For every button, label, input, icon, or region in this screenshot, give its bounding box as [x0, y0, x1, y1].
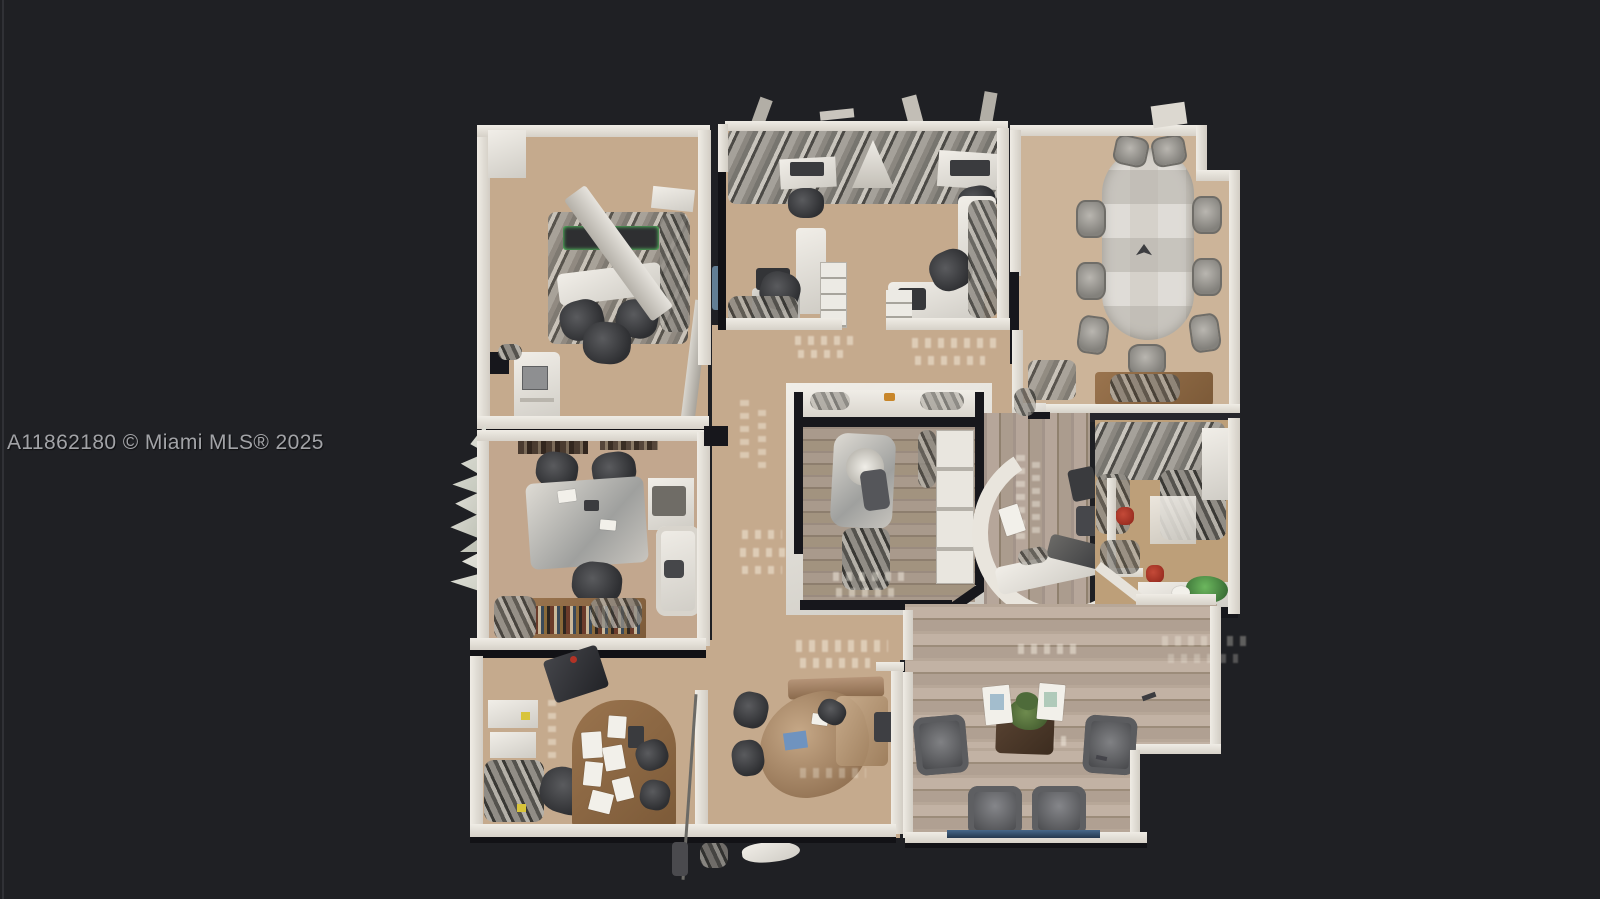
wall-ledge — [876, 662, 904, 671]
ghost-mark — [912, 338, 997, 348]
wall — [477, 432, 489, 644]
operatory-wall — [794, 417, 984, 427]
wall-shadow — [704, 837, 896, 843]
clutter — [1014, 388, 1036, 416]
conference-chair — [1076, 200, 1106, 238]
equipment-dark — [859, 468, 890, 511]
printer — [652, 486, 686, 516]
wall — [891, 664, 903, 834]
ghost-mark — [800, 658, 870, 668]
floor-plan-photo: A11862180 © Miami MLS® 2025 — [0, 0, 1600, 899]
wall — [698, 130, 711, 365]
ghost-mark — [742, 566, 782, 574]
clutter — [484, 760, 544, 822]
cabinet-column — [936, 430, 974, 584]
wall — [695, 690, 708, 832]
copier-screen — [522, 366, 548, 390]
wall — [1210, 606, 1221, 752]
wall — [903, 672, 913, 838]
yellow-item — [517, 804, 526, 812]
conference-chair — [1188, 312, 1223, 354]
counter-item — [884, 393, 895, 401]
monitor — [790, 162, 824, 176]
blue-paper — [783, 730, 808, 750]
paper — [607, 715, 626, 738]
ghost-mark — [796, 640, 888, 652]
scan-artifact — [700, 842, 728, 868]
paper — [581, 731, 603, 758]
wall — [997, 128, 1009, 330]
ghost-mark — [740, 400, 749, 465]
ghost-mark — [795, 336, 857, 345]
armchair — [968, 786, 1022, 836]
counter-items — [920, 392, 964, 410]
wall — [704, 824, 896, 837]
wall — [1010, 125, 1202, 136]
conference-table-top — [1102, 148, 1194, 340]
wall — [697, 432, 710, 646]
pillow — [664, 560, 684, 578]
wall — [477, 430, 707, 441]
scan-artifact — [979, 91, 997, 123]
wall — [470, 824, 704, 837]
wall — [1136, 744, 1221, 754]
wall — [470, 656, 483, 836]
ghost-mark — [742, 530, 782, 539]
ghost-mark — [836, 588, 900, 597]
counter — [1150, 496, 1196, 544]
mls-watermark: A11862180 © Miami MLS® 2025 — [7, 431, 324, 455]
ghost-mark — [758, 410, 766, 468]
wall-shadow — [905, 843, 1147, 848]
entry-door-glass — [947, 830, 1100, 838]
edge-highlight-line — [2, 0, 4, 899]
ghost-mark — [548, 700, 556, 760]
ghost-mark — [800, 768, 866, 778]
red-chair — [1116, 507, 1134, 525]
armchair — [913, 714, 970, 776]
office-chair — [788, 188, 824, 218]
ghost-mark — [833, 572, 905, 581]
clutter — [918, 430, 936, 488]
wall — [1130, 750, 1140, 840]
ghost-mark — [1162, 636, 1246, 646]
clutter — [968, 200, 998, 318]
paper — [557, 489, 576, 503]
ghost-mark — [740, 548, 786, 557]
scan-artifact — [820, 108, 855, 121]
desk-phone — [584, 500, 599, 511]
clutter — [498, 344, 522, 360]
drawer-stack — [886, 290, 912, 320]
clutter — [590, 598, 642, 628]
wall — [725, 318, 842, 330]
executive-desk — [525, 476, 649, 570]
wall-corner — [488, 130, 526, 178]
paper — [583, 761, 603, 787]
wall — [477, 416, 709, 429]
wall-shadow — [470, 837, 704, 843]
office-chair — [582, 320, 633, 365]
storage-boxes — [488, 700, 538, 728]
paper — [600, 519, 617, 530]
clutter — [494, 596, 536, 640]
magazine-art — [1044, 692, 1057, 707]
red-dot — [570, 656, 577, 663]
paper — [602, 744, 626, 771]
conference-chair — [1076, 262, 1106, 300]
wall-shadow — [718, 172, 726, 330]
red-chair — [1146, 565, 1164, 583]
ghost-mark — [1168, 654, 1238, 663]
desk — [651, 186, 695, 212]
copier-tray — [520, 398, 554, 402]
ghost-mark — [915, 356, 985, 365]
armchair — [1032, 786, 1086, 836]
wall — [886, 318, 1010, 330]
magazine-art — [990, 694, 1004, 710]
door-lintel — [704, 426, 728, 446]
clutter — [660, 214, 690, 332]
wall — [903, 610, 913, 660]
scan-artifact — [672, 842, 688, 876]
conference-chair — [1192, 196, 1222, 234]
counter-items — [810, 392, 850, 410]
storage-boxes — [490, 732, 536, 758]
wall — [725, 121, 1008, 131]
wall — [1136, 594, 1216, 605]
ghost-mark — [1018, 644, 1080, 654]
scan-artifact — [1151, 102, 1188, 129]
wall — [1010, 130, 1021, 276]
conference-chair — [1192, 258, 1222, 296]
wall — [1229, 170, 1240, 418]
ghost-mark — [798, 350, 846, 358]
clutter — [1110, 374, 1180, 402]
monitor — [950, 160, 990, 176]
yellow-item — [521, 712, 530, 720]
wall — [718, 124, 728, 172]
wall — [1228, 418, 1240, 614]
